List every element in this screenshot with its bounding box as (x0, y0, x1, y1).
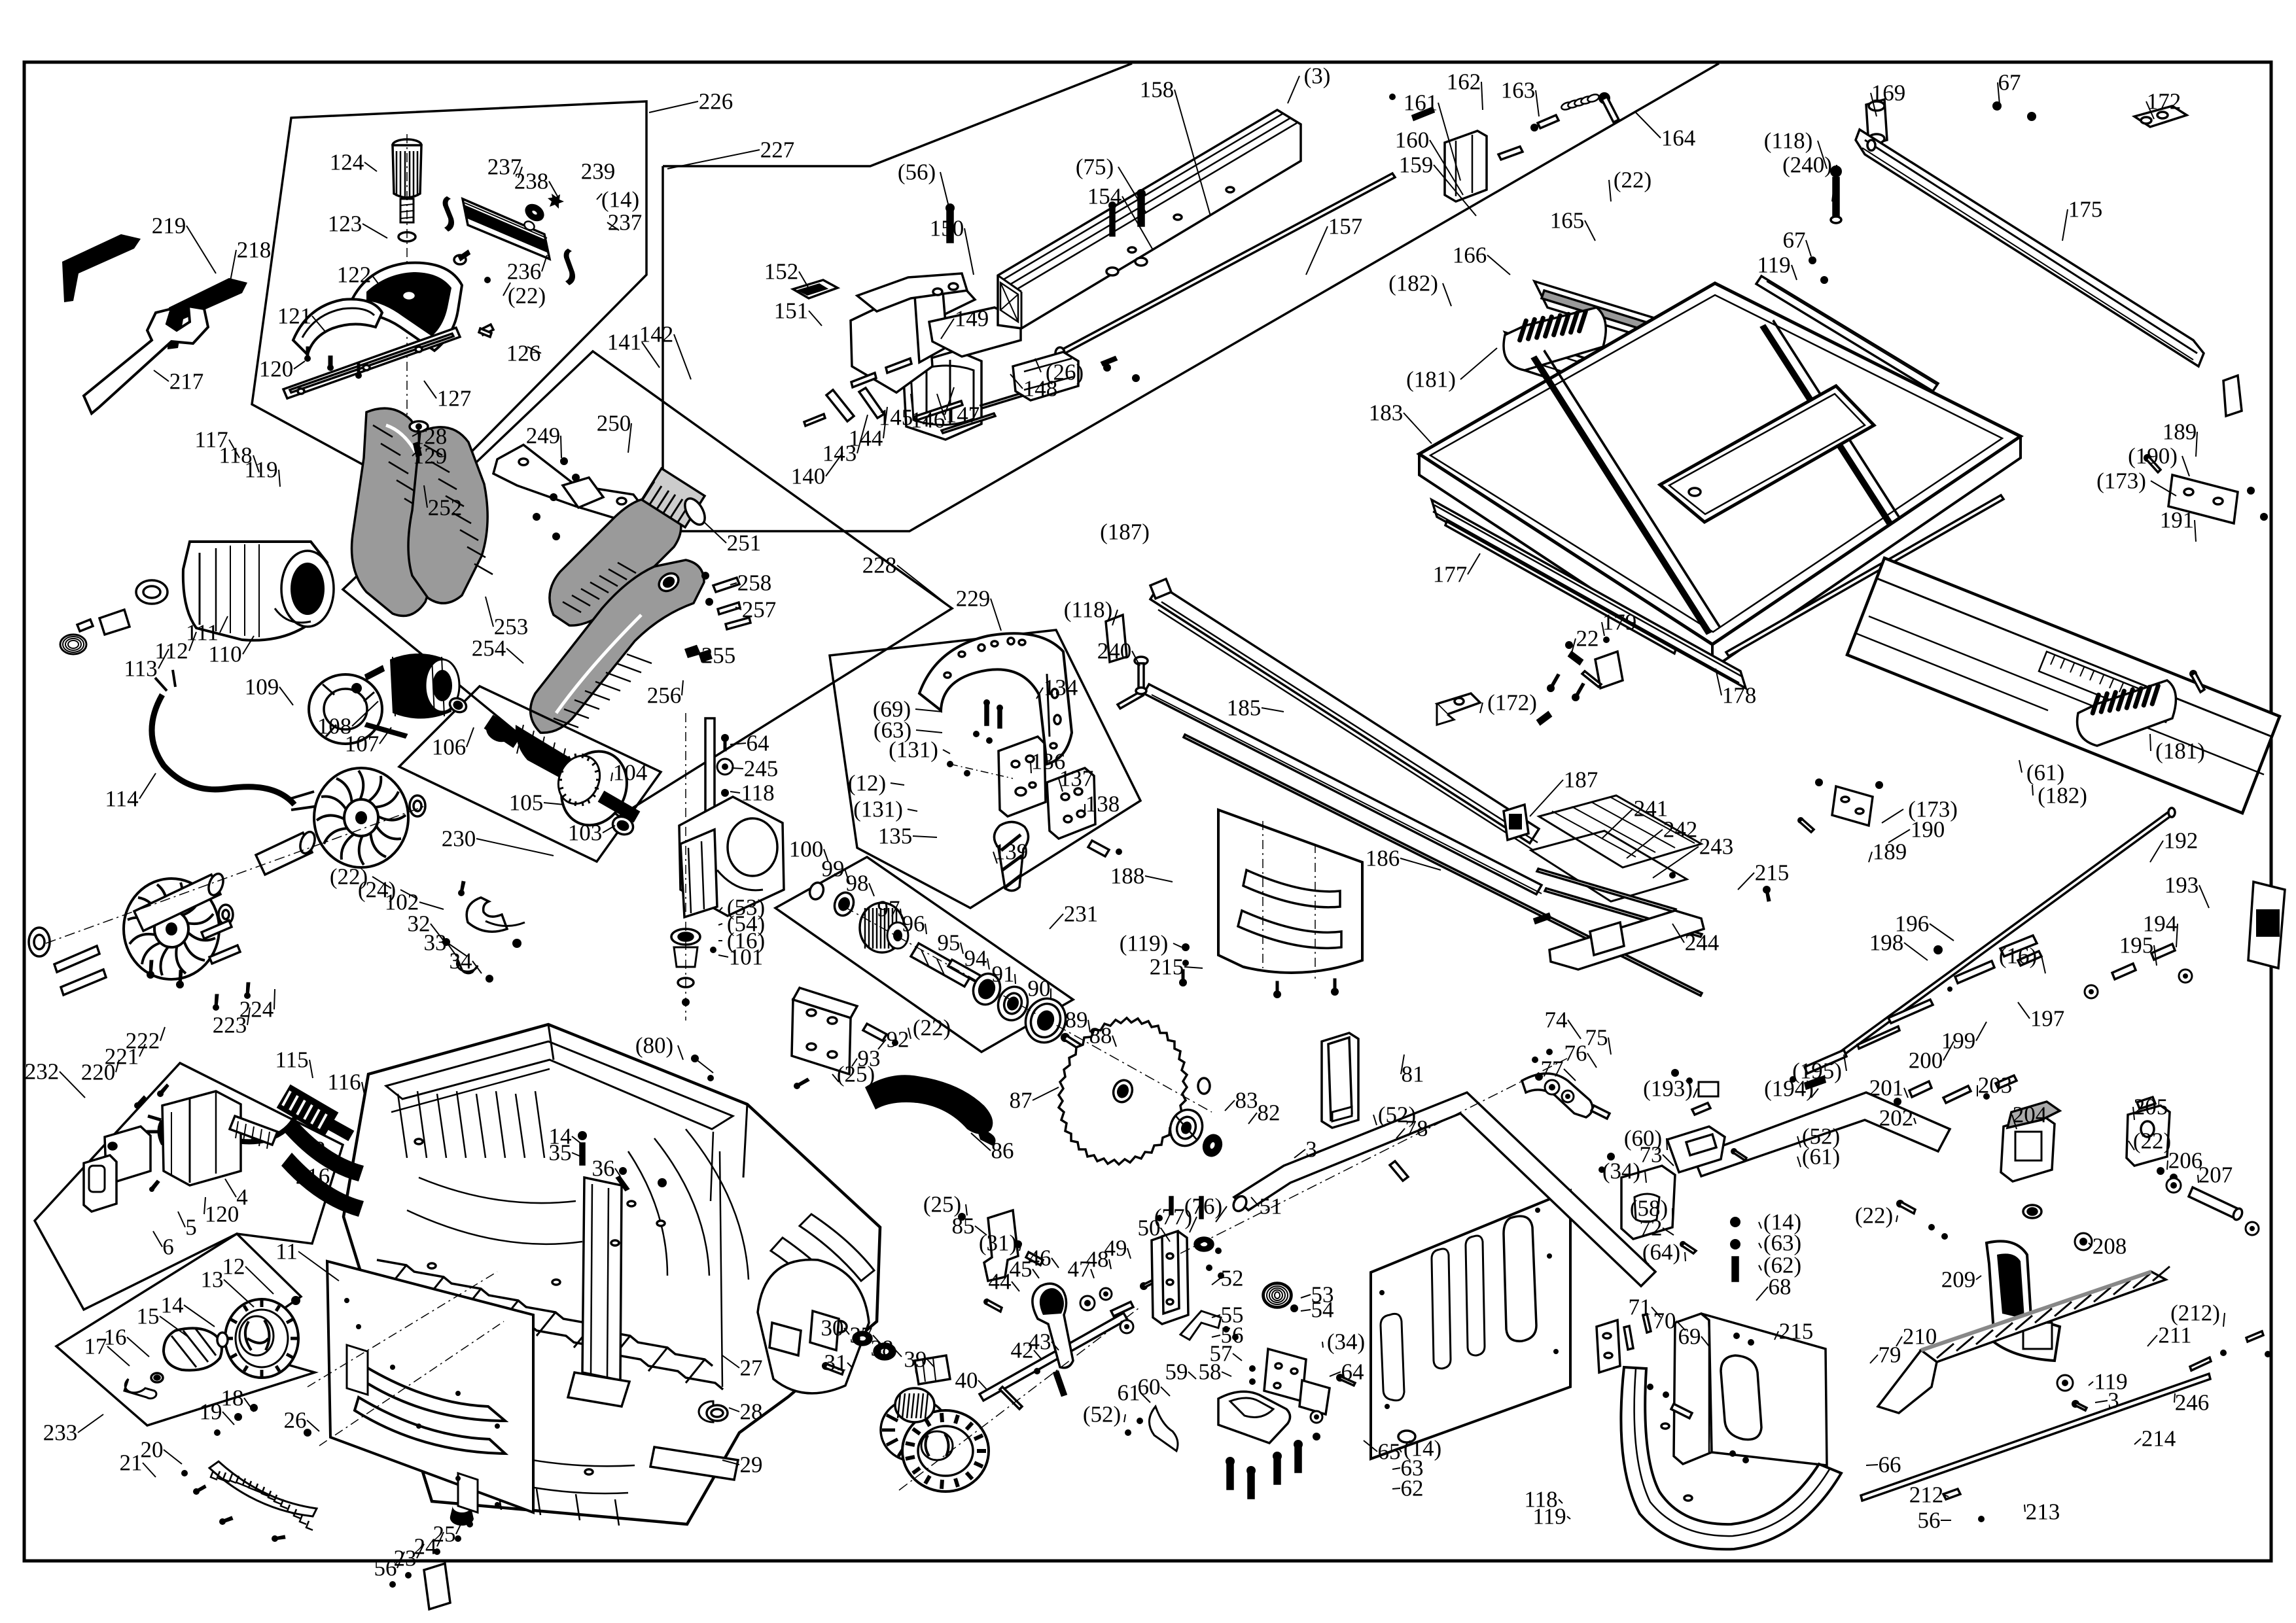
svg-text:114: 114 (105, 786, 138, 812)
svg-text:(61): (61) (2026, 760, 2064, 786)
svg-text:(14): (14) (601, 187, 639, 213)
svg-text:23: 23 (394, 1546, 417, 1571)
svg-text:(22): (22) (2133, 1128, 2171, 1154)
svg-text:230: 230 (442, 826, 476, 852)
svg-text:232: 232 (25, 1059, 60, 1085)
svg-text:239: 239 (581, 159, 616, 184)
svg-text:90: 90 (1028, 976, 1051, 1002)
svg-text:177: 177 (1433, 562, 1468, 587)
svg-text:30: 30 (821, 1316, 844, 1341)
svg-text:150: 150 (930, 216, 964, 241)
svg-text:64: 64 (1341, 1359, 1364, 1385)
svg-text:138: 138 (1086, 792, 1120, 817)
svg-text:209: 209 (1941, 1267, 1976, 1293)
svg-text:189: 189 (2163, 419, 2197, 445)
svg-text:(22): (22) (508, 283, 546, 309)
svg-text:122: 122 (337, 262, 372, 288)
svg-text:240: 240 (1097, 638, 1132, 664)
svg-text:163: 163 (1501, 78, 1536, 103)
svg-text:134: 134 (1044, 675, 1078, 701)
svg-text:51: 51 (1260, 1194, 1282, 1219)
svg-text:106: 106 (432, 735, 467, 760)
svg-text:126: 126 (506, 341, 541, 366)
svg-text:88: 88 (1089, 1023, 1112, 1049)
svg-text:(12): (12) (848, 771, 886, 796)
svg-text:(173): (173) (2096, 468, 2146, 494)
svg-text:19: 19 (200, 1399, 222, 1425)
svg-text:258: 258 (737, 570, 772, 596)
svg-text:183: 183 (1369, 400, 1404, 426)
svg-text:11: 11 (275, 1239, 298, 1265)
svg-text:105: 105 (509, 790, 544, 816)
svg-text:250: 250 (597, 411, 631, 436)
svg-text:25: 25 (433, 1522, 456, 1547)
svg-text:211: 211 (2158, 1323, 2191, 1348)
svg-text:29: 29 (740, 1452, 763, 1478)
svg-text:(16): (16) (1999, 943, 2037, 969)
svg-text:202: 202 (1879, 1106, 1914, 1131)
svg-text:(131): (131) (889, 737, 938, 763)
svg-text:56: 56 (1918, 1508, 1941, 1533)
svg-text:16: 16 (104, 1325, 127, 1350)
svg-text:228: 228 (862, 553, 897, 578)
svg-text:82: 82 (1258, 1100, 1280, 1126)
svg-text:13: 13 (201, 1267, 224, 1293)
svg-text:87: 87 (1010, 1088, 1033, 1113)
svg-text:54: 54 (1311, 1297, 1334, 1323)
svg-text:142: 142 (639, 322, 674, 347)
svg-text:6: 6 (162, 1234, 174, 1260)
svg-text:233: 233 (43, 1420, 78, 1446)
svg-text:66: 66 (1879, 1452, 1901, 1478)
svg-text:219: 219 (152, 213, 186, 239)
svg-text:92: 92 (887, 1027, 910, 1053)
svg-text:26: 26 (284, 1408, 307, 1433)
svg-text:68: 68 (1769, 1274, 1792, 1300)
svg-text:21: 21 (120, 1450, 143, 1476)
svg-text:83: 83 (1235, 1088, 1258, 1113)
svg-text:47: 47 (1068, 1257, 1091, 1282)
svg-text:86: 86 (991, 1138, 1014, 1164)
svg-text:85: 85 (952, 1213, 975, 1239)
svg-text:(80): (80) (635, 1033, 673, 1058)
svg-text:(181): (181) (2155, 739, 2205, 764)
svg-text:67: 67 (1783, 228, 1806, 253)
svg-text:101: 101 (729, 945, 764, 970)
svg-text:(119): (119) (1120, 931, 1169, 956)
svg-text:36: 36 (592, 1156, 615, 1181)
svg-text:162: 162 (1447, 69, 1481, 95)
svg-text:159: 159 (1399, 152, 1434, 178)
svg-text:40: 40 (955, 1368, 978, 1393)
svg-text:(25): (25) (837, 1062, 875, 1087)
svg-text:215: 215 (1755, 860, 1790, 886)
svg-text:144: 144 (849, 426, 883, 451)
svg-text:140: 140 (791, 464, 826, 489)
svg-text:27: 27 (740, 1355, 763, 1381)
svg-text:(212): (212) (2170, 1300, 2220, 1326)
svg-text:(34): (34) (1602, 1159, 1640, 1184)
svg-text:123: 123 (328, 211, 362, 237)
svg-text:113: 113 (124, 656, 157, 682)
svg-text:(131): (131) (853, 797, 903, 822)
svg-text:(182): (182) (1388, 271, 1438, 296)
svg-text:89: 89 (1065, 1007, 1088, 1033)
svg-text:(76): (76) (1184, 1194, 1222, 1219)
svg-text:151: 151 (774, 298, 809, 324)
svg-text:70: 70 (1653, 1308, 1676, 1334)
svg-text:237: 237 (608, 210, 643, 236)
svg-text:119: 119 (244, 457, 277, 483)
svg-text:96: 96 (902, 911, 925, 937)
svg-text:(172): (172) (1487, 690, 1537, 716)
svg-text:116: 116 (327, 1070, 361, 1095)
svg-text:76: 76 (1564, 1041, 1587, 1066)
svg-text:218: 218 (237, 237, 272, 263)
svg-text:249: 249 (526, 423, 561, 449)
svg-text:172: 172 (2147, 89, 2181, 114)
svg-text:198: 198 (1869, 930, 1904, 956)
svg-text:(3): (3) (1304, 63, 1331, 89)
svg-text:190: 190 (1911, 817, 1945, 843)
svg-text:161: 161 (1404, 90, 1438, 116)
svg-text:118: 118 (741, 780, 774, 806)
svg-text:146: 146 (911, 408, 945, 433)
svg-text:186: 186 (1366, 846, 1400, 871)
svg-text:152: 152 (764, 259, 799, 285)
svg-text:44: 44 (989, 1269, 1012, 1295)
svg-text:135: 135 (878, 824, 913, 849)
svg-text:(75): (75) (1076, 154, 1114, 180)
svg-text:120: 120 (205, 1202, 239, 1227)
svg-text:65: 65 (1378, 1439, 1401, 1465)
svg-text:35: 35 (549, 1140, 572, 1166)
svg-text:77: 77 (1541, 1056, 1564, 1082)
svg-text:103: 103 (568, 820, 603, 846)
svg-text:120: 120 (259, 357, 294, 382)
svg-text:127: 127 (437, 386, 472, 411)
svg-text:193: 193 (2164, 873, 2199, 898)
svg-text:14: 14 (161, 1293, 184, 1318)
svg-text:31: 31 (824, 1350, 847, 1376)
svg-text:160: 160 (1395, 128, 1430, 153)
svg-text:112: 112 (154, 638, 188, 664)
svg-text:137: 137 (1059, 766, 1094, 792)
svg-text:(190): (190) (2128, 444, 2178, 469)
svg-text:244: 244 (1685, 930, 1720, 956)
svg-text:(22): (22) (1855, 1203, 1893, 1229)
svg-text:60: 60 (1138, 1374, 1161, 1400)
svg-text:64: 64 (747, 731, 769, 756)
svg-text:22: 22 (1576, 626, 1599, 652)
svg-text:18: 18 (221, 1386, 244, 1411)
svg-text:191: 191 (2160, 508, 2195, 533)
svg-text:39: 39 (904, 1347, 927, 1372)
svg-text:28: 28 (740, 1399, 763, 1425)
svg-text:(181): (181) (1406, 367, 1456, 393)
svg-text:100: 100 (789, 837, 824, 862)
svg-text:169: 169 (1871, 80, 1906, 106)
svg-text:(22): (22) (913, 1015, 951, 1041)
svg-text:212: 212 (1909, 1482, 1944, 1508)
svg-text:231: 231 (1064, 901, 1099, 927)
svg-text:(52): (52) (1083, 1402, 1121, 1427)
svg-text:257: 257 (742, 597, 777, 623)
svg-text:(118): (118) (1064, 597, 1113, 623)
svg-text:95: 95 (938, 930, 961, 956)
svg-text:192: 192 (2164, 828, 2199, 854)
svg-text:(194): (194) (1764, 1076, 1814, 1102)
svg-text:17: 17 (84, 1334, 107, 1359)
svg-text:208: 208 (2093, 1234, 2127, 1259)
svg-text:214: 214 (2142, 1426, 2176, 1452)
svg-text:178: 178 (1722, 683, 1757, 708)
svg-text:215: 215 (1150, 954, 1184, 980)
svg-text:(193): (193) (1643, 1076, 1693, 1102)
svg-text:(61): (61) (1802, 1144, 1840, 1170)
svg-text:129: 129 (413, 444, 448, 469)
svg-text:115: 115 (275, 1047, 308, 1073)
svg-text:37: 37 (850, 1323, 873, 1348)
svg-text:197: 197 (2030, 1006, 2065, 1032)
svg-text:58: 58 (1199, 1359, 1222, 1385)
svg-text:245: 245 (744, 756, 779, 782)
svg-text:12: 12 (222, 1254, 245, 1280)
svg-text:(240): (240) (1782, 152, 1832, 178)
svg-text:119: 119 (1757, 253, 1790, 278)
svg-text:203: 203 (1978, 1073, 2013, 1098)
svg-text:139: 139 (994, 839, 1029, 865)
svg-text:145: 145 (879, 405, 913, 430)
svg-text:236: 236 (507, 259, 542, 285)
svg-text:204: 204 (2013, 1102, 2047, 1128)
svg-text:141: 141 (607, 330, 642, 355)
svg-text:78: 78 (1405, 1116, 1428, 1142)
svg-text:3: 3 (2108, 1388, 2119, 1414)
svg-text:149: 149 (955, 306, 989, 332)
svg-text:81: 81 (1402, 1062, 1424, 1087)
svg-text:38: 38 (871, 1336, 894, 1361)
svg-text:52: 52 (1221, 1266, 1244, 1291)
svg-text:79: 79 (1879, 1342, 1901, 1368)
svg-text:111: 111 (186, 620, 219, 646)
svg-text:98: 98 (846, 871, 869, 896)
svg-text:94: 94 (964, 946, 987, 971)
svg-text:200: 200 (1909, 1048, 1943, 1073)
svg-text:34: 34 (450, 949, 472, 974)
svg-text:226: 226 (699, 89, 733, 114)
svg-text:256: 256 (647, 683, 682, 708)
svg-text:121: 121 (277, 304, 312, 329)
svg-text:69: 69 (1678, 1324, 1701, 1350)
svg-text:67: 67 (1998, 70, 2021, 96)
svg-text:108: 108 (317, 714, 352, 739)
svg-text:109: 109 (245, 674, 279, 700)
svg-text:187: 187 (1564, 767, 1598, 793)
svg-text:59: 59 (1165, 1359, 1188, 1385)
svg-text:175: 175 (2068, 197, 2103, 222)
svg-text:166: 166 (1453, 243, 1487, 268)
svg-text:252: 252 (428, 495, 463, 521)
svg-text:185: 185 (1227, 695, 1262, 721)
svg-text:97: 97 (877, 896, 900, 922)
svg-text:223: 223 (213, 1013, 247, 1038)
svg-text:216: 216 (296, 1164, 330, 1189)
svg-text:73: 73 (1640, 1142, 1663, 1168)
svg-text:43: 43 (1029, 1329, 1051, 1355)
svg-text:3: 3 (1305, 1137, 1317, 1162)
svg-text:220: 220 (81, 1060, 116, 1085)
svg-text:20: 20 (141, 1437, 164, 1463)
svg-text:238: 238 (514, 169, 549, 194)
svg-text:206: 206 (2168, 1148, 2203, 1174)
svg-text:62: 62 (1401, 1476, 1424, 1501)
svg-text:201: 201 (1869, 1075, 1904, 1101)
svg-text:164: 164 (1661, 126, 1696, 151)
svg-text:33: 33 (424, 930, 447, 956)
svg-text:75: 75 (1585, 1025, 1608, 1051)
svg-text:45: 45 (1010, 1257, 1033, 1282)
svg-text:229: 229 (956, 586, 991, 612)
svg-text:(64): (64) (1642, 1240, 1680, 1265)
svg-text:205: 205 (2134, 1094, 2168, 1120)
svg-text:91: 91 (992, 962, 1015, 987)
svg-text:72: 72 (1640, 1215, 1663, 1241)
svg-text:242: 242 (1663, 817, 1698, 843)
svg-text:165: 165 (1550, 208, 1585, 234)
svg-text:227: 227 (760, 137, 795, 163)
svg-text:99: 99 (822, 856, 845, 882)
svg-text:246: 246 (2175, 1390, 2210, 1416)
svg-text:154: 154 (1087, 184, 1122, 209)
svg-text:5: 5 (185, 1215, 197, 1240)
svg-text:217: 217 (169, 369, 204, 394)
svg-text:251: 251 (727, 531, 762, 556)
svg-text:104: 104 (613, 760, 648, 786)
svg-text:189: 189 (1873, 839, 1907, 865)
svg-text:207: 207 (2199, 1162, 2233, 1188)
svg-text:2: 2 (314, 1137, 326, 1162)
svg-text:(22): (22) (1614, 167, 1651, 193)
svg-text:124: 124 (330, 150, 364, 175)
svg-text:210: 210 (1903, 1324, 1937, 1350)
svg-text:(118): (118) (1764, 128, 1813, 154)
svg-text:199: 199 (1941, 1028, 1976, 1054)
svg-text:(31): (31) (979, 1230, 1017, 1256)
svg-text:215: 215 (1779, 1319, 1814, 1344)
svg-text:71: 71 (1629, 1295, 1651, 1320)
svg-text:(187): (187) (1100, 519, 1150, 545)
svg-text:213: 213 (2026, 1499, 2060, 1525)
svg-text:(182): (182) (2038, 783, 2087, 809)
svg-text:119: 119 (1532, 1504, 1566, 1529)
svg-text:158: 158 (1140, 77, 1174, 103)
svg-text:(34): (34) (1327, 1329, 1365, 1355)
svg-text:188: 188 (1110, 864, 1145, 889)
svg-text:254: 254 (472, 636, 506, 661)
svg-text:147: 147 (945, 402, 980, 428)
svg-text:195: 195 (2119, 933, 2154, 958)
svg-text:243: 243 (1699, 834, 1734, 860)
svg-text:(26): (26) (1046, 360, 1084, 385)
svg-text:179: 179 (1602, 610, 1637, 635)
svg-text:15: 15 (137, 1304, 160, 1329)
svg-text:255: 255 (701, 643, 736, 669)
svg-text:157: 157 (1328, 214, 1363, 239)
svg-text:74: 74 (1545, 1007, 1568, 1033)
svg-text:(56): (56) (898, 160, 936, 185)
